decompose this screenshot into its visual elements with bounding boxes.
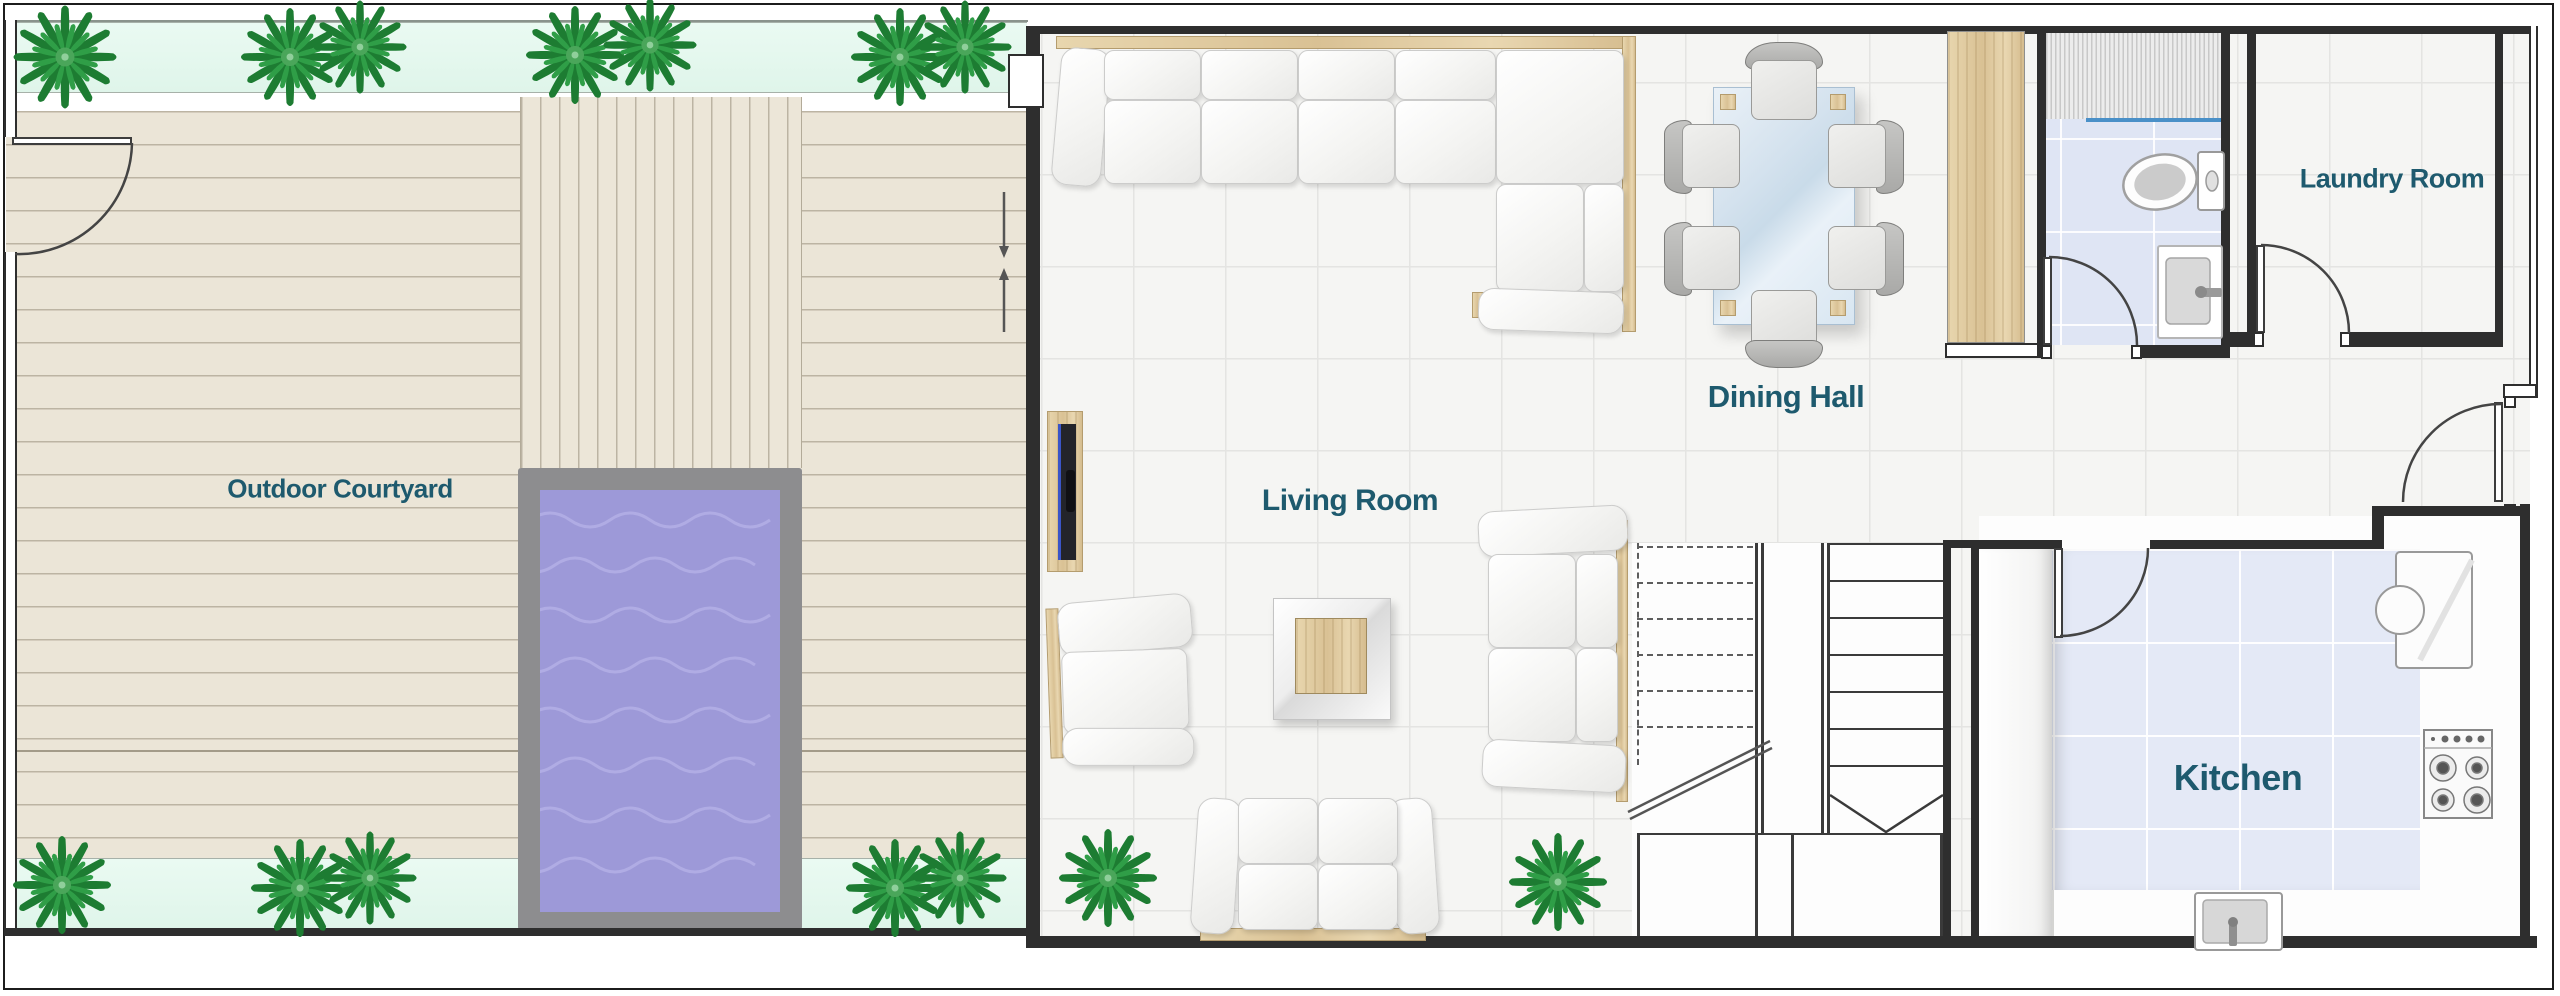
kitchen-right-wall bbox=[2520, 504, 2530, 948]
loveseat-back-cushion bbox=[1318, 864, 1398, 930]
stair-dashed-tread bbox=[1637, 726, 1753, 728]
stair-dashed-tread bbox=[1637, 654, 1753, 656]
sectional-back-cushion bbox=[1298, 50, 1395, 100]
stair-stringer bbox=[1827, 543, 1830, 835]
sectional-chaise-seat bbox=[1496, 184, 1584, 292]
planter-strip-bottom bbox=[6, 858, 1027, 930]
dining-chair-seat bbox=[1828, 226, 1886, 290]
stair-dashed-tread bbox=[1637, 618, 1753, 620]
kitchen-counter-left bbox=[1979, 549, 2054, 936]
sectional-sofa-back-rail bbox=[1056, 36, 1636, 49]
laundry-door-jamb bbox=[2340, 332, 2351, 347]
stairs-right-wall bbox=[1943, 540, 1951, 948]
loveseat-seat-cushion bbox=[1238, 798, 1318, 864]
loveseat-back-rail bbox=[1200, 928, 1426, 941]
partition-base-wall bbox=[1945, 343, 2041, 358]
two-seater-top-armrest bbox=[1477, 504, 1629, 558]
loveseat-seat-cushion bbox=[1318, 798, 1398, 864]
sectional-seat-cushion bbox=[1201, 100, 1298, 184]
wood-partition bbox=[1947, 31, 2025, 343]
laundry-door-leaf bbox=[2256, 245, 2265, 333]
room-label-dining-hall: Dining Hall bbox=[1708, 379, 1864, 415]
sectional-corner-cushion bbox=[1496, 50, 1624, 184]
stair-tread bbox=[1828, 617, 1943, 619]
room-label-outdoor-courtyard: Outdoor Courtyard bbox=[227, 474, 453, 505]
kitchen-top-wall-right bbox=[2150, 540, 2378, 549]
armchair bbox=[1045, 595, 1201, 768]
stair-tread bbox=[1828, 728, 1943, 730]
courtyard-left-wall-upper bbox=[4, 20, 17, 137]
shower-area bbox=[2046, 33, 2221, 119]
kitchen-left-wall bbox=[1971, 540, 1979, 948]
courtyard-bottom-wall bbox=[4, 928, 1028, 936]
kitchen-offset-wall bbox=[2376, 506, 2530, 516]
stair-stringer bbox=[1821, 543, 1824, 835]
sectional-sofa-right-rail bbox=[1622, 36, 1636, 332]
bathroom-door-jamb bbox=[2041, 345, 2052, 359]
bathroom-bottom-wall-right bbox=[2135, 345, 2230, 358]
two-seater-bottom-armrest bbox=[1481, 738, 1627, 793]
understair-wall bbox=[1755, 833, 1758, 936]
courtyard-door-leaf bbox=[12, 137, 132, 145]
swimming-pool bbox=[540, 490, 780, 912]
sectional-back-cushion bbox=[1201, 50, 1298, 100]
laundry-bottom-wall-right bbox=[2344, 332, 2496, 347]
loveseat-back-cushion bbox=[1238, 864, 1318, 930]
kitchen-wall-connector bbox=[2372, 506, 2384, 549]
bathroom-door-jamb bbox=[2131, 345, 2142, 359]
kitchen-floor bbox=[2052, 549, 2420, 890]
shower-glass-screen bbox=[2086, 118, 2221, 122]
dining-table-corner-pad bbox=[1830, 300, 1846, 316]
sectional-seat-cushion bbox=[1298, 100, 1395, 184]
dining-chair-seat bbox=[1682, 124, 1740, 188]
sectional-chaise-back bbox=[1584, 184, 1624, 292]
sectional-back-cushion bbox=[1104, 50, 1201, 100]
sectional-chaise-armrest bbox=[1477, 287, 1624, 334]
dining-chair-seat bbox=[1828, 124, 1886, 188]
stair-tread bbox=[1828, 765, 1943, 767]
kitchen-door-leaf bbox=[2054, 548, 2063, 638]
room-label-living-room: Living Room bbox=[1262, 484, 1438, 518]
stair-stringer bbox=[1755, 543, 1758, 835]
floor-plan-canvas: Outdoor Courtyard Living Room bbox=[0, 0, 2560, 996]
stair-tread bbox=[1828, 580, 1943, 582]
sectional-seat-cushion bbox=[1395, 100, 1496, 184]
stair-landing-line bbox=[1637, 833, 1943, 835]
two-seater-seat-cushion bbox=[1488, 648, 1576, 742]
bathroom-right-wall bbox=[2221, 26, 2230, 358]
tv-bracket bbox=[1066, 470, 1075, 512]
room-label-kitchen: Kitchen bbox=[2174, 757, 2303, 799]
dining-chair-seat bbox=[1751, 60, 1817, 120]
coffee-table-top bbox=[1295, 618, 1367, 694]
courtyard-deck bbox=[6, 111, 1027, 858]
two-seater-seat-cushion bbox=[1488, 554, 1576, 648]
courtyard-left-wall-lower bbox=[4, 252, 17, 930]
two-seater-back-cushion bbox=[1576, 554, 1618, 648]
house-right-wall-upper bbox=[2529, 26, 2538, 398]
stair-tread bbox=[1828, 654, 1943, 656]
pool-water-waves bbox=[540, 490, 780, 912]
laundry-right-wall bbox=[2495, 26, 2503, 347]
dining-chair-seat bbox=[1682, 226, 1740, 290]
house-top-wall bbox=[1026, 26, 2537, 34]
laundry-door-jamb bbox=[2253, 332, 2264, 347]
courtyard-house-wall bbox=[1026, 26, 1040, 948]
understair-wall bbox=[1637, 833, 1640, 936]
two-seater-back-cushion bbox=[1576, 648, 1618, 742]
stair-dashed-tread bbox=[1637, 546, 1753, 548]
wall-pier bbox=[1008, 54, 1044, 108]
armchair-seat bbox=[1061, 648, 1190, 734]
staircase-block bbox=[1632, 543, 1943, 936]
deck-seam-left bbox=[6, 750, 520, 752]
dining-table-corner-pad bbox=[1830, 94, 1846, 110]
bathroom-door-leaf bbox=[2043, 257, 2052, 345]
sectional-back-cushion bbox=[1395, 50, 1496, 100]
kitchen-top-wall-left bbox=[1971, 540, 2062, 549]
stair-dashed-tread bbox=[1637, 582, 1753, 584]
sectional-seat-cushion bbox=[1104, 100, 1201, 184]
stair-tread bbox=[1828, 691, 1943, 693]
stair-stringer bbox=[1761, 543, 1764, 835]
dining-table-corner-pad bbox=[1720, 300, 1736, 316]
armchair-front-cushion bbox=[1062, 728, 1194, 766]
entrance-jamb-top bbox=[2504, 396, 2516, 408]
dining-table-corner-pad bbox=[1720, 94, 1736, 110]
laundry-left-wall bbox=[2247, 26, 2256, 347]
room-label-laundry-room: Laundry Room bbox=[2300, 164, 2485, 195]
planter-strip-top bbox=[6, 22, 1027, 93]
deck-seam-right bbox=[800, 750, 1027, 752]
stair-tread bbox=[1828, 543, 1943, 545]
understair-wall bbox=[1791, 833, 1794, 936]
stair-dashed-tread bbox=[1637, 690, 1753, 692]
boardwalk-strip bbox=[520, 97, 802, 468]
entrance-door-leaf bbox=[2494, 402, 2503, 502]
